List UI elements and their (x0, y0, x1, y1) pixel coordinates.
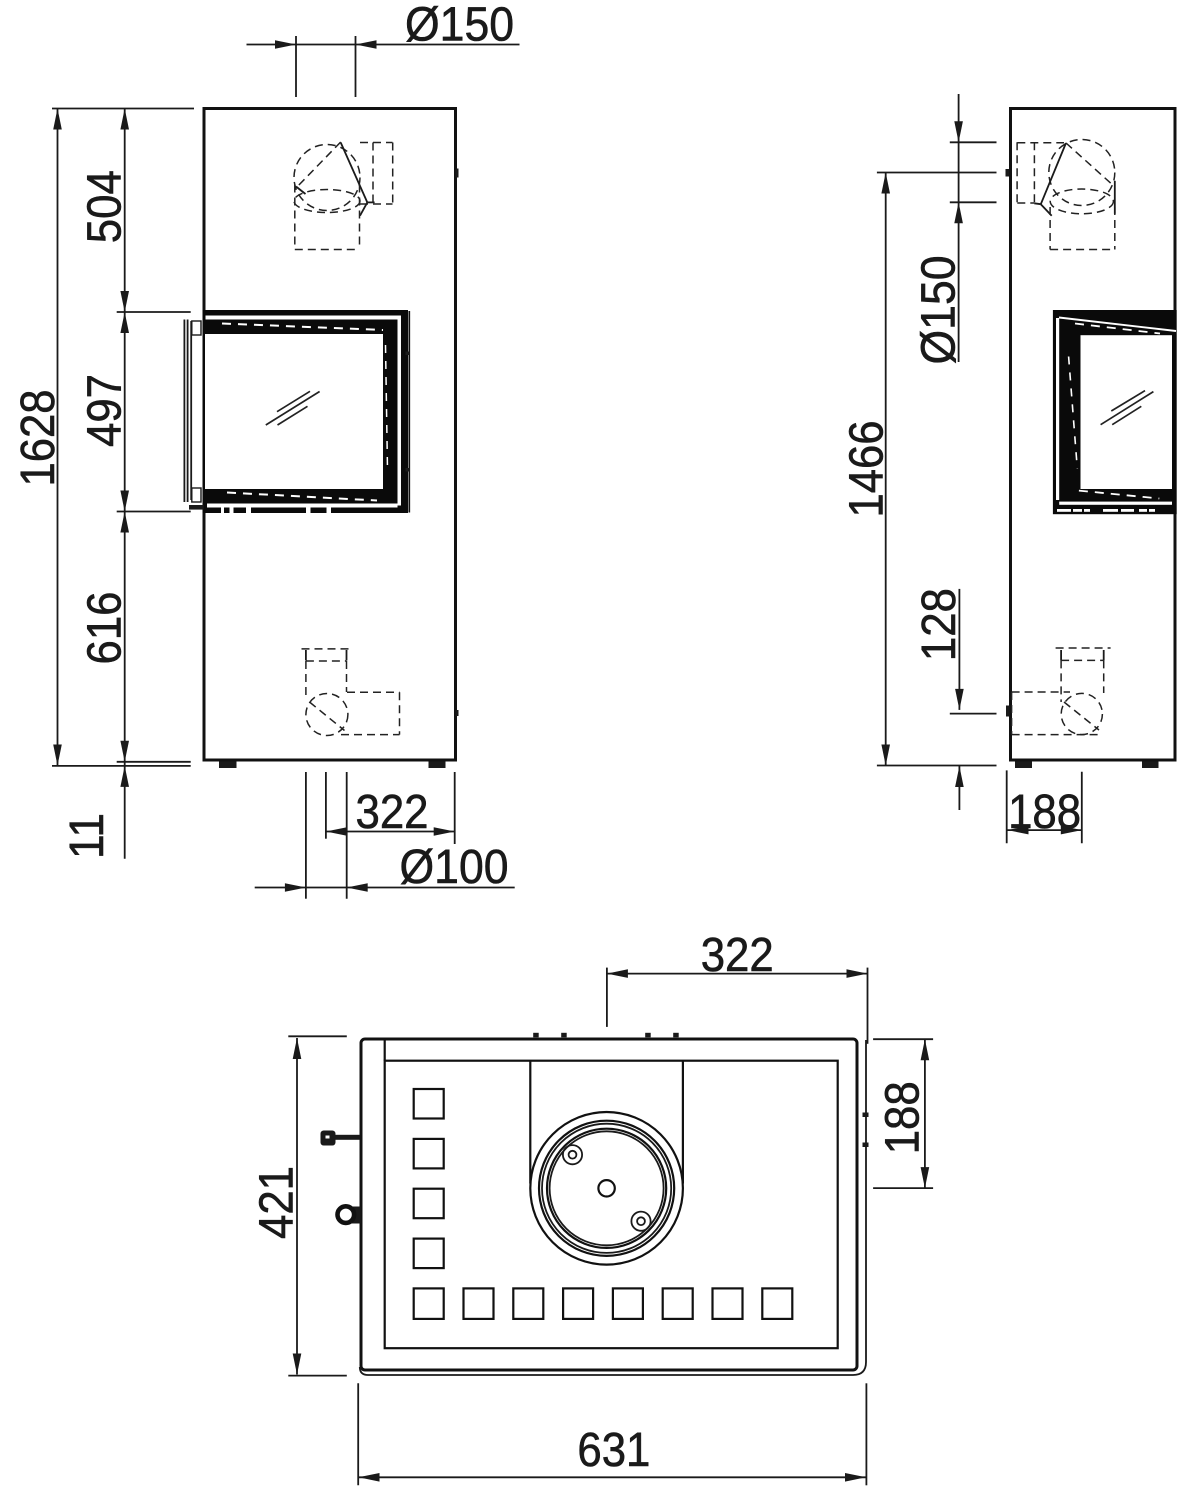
svg-text:616: 616 (79, 592, 132, 665)
svg-text:1628: 1628 (12, 390, 65, 487)
svg-text:322: 322 (701, 929, 774, 982)
svg-text:Ø150: Ø150 (913, 256, 966, 365)
svg-text:11: 11 (61, 813, 114, 859)
svg-text:1466: 1466 (841, 421, 894, 518)
svg-text:421: 421 (251, 1166, 304, 1239)
svg-text:322: 322 (356, 786, 429, 839)
svg-text:188: 188 (1008, 786, 1081, 839)
svg-text:504: 504 (79, 170, 132, 243)
svg-text:631: 631 (577, 1424, 650, 1477)
svg-text:Ø100: Ø100 (400, 841, 509, 894)
svg-text:188: 188 (877, 1081, 930, 1154)
svg-text:128: 128 (913, 588, 966, 661)
svg-text:497: 497 (79, 374, 132, 447)
svg-text:Ø150: Ø150 (405, 0, 514, 52)
